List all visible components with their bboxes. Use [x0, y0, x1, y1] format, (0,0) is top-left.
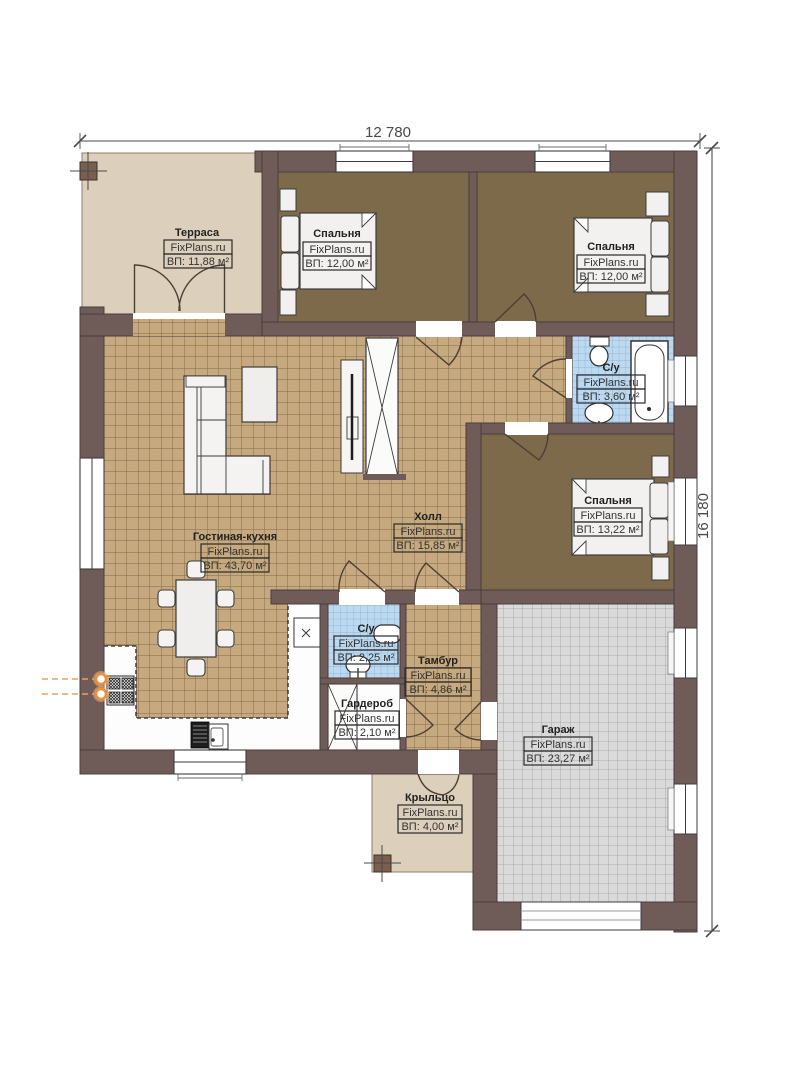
svg-text:ВП: 15,85 м²: ВП: 15,85 м²: [396, 540, 460, 552]
svg-text:FixPlans.ru: FixPlans.ru: [583, 377, 638, 389]
svg-text:ВП: 11,88 м²: ВП: 11,88 м²: [167, 256, 230, 268]
svg-text:Крыльцо: Крыльцо: [405, 792, 455, 804]
svg-text:FixPlans.ru: FixPlans.ru: [339, 713, 394, 725]
svg-text:ВП: 12,00 м²: ВП: 12,00 м²: [579, 271, 643, 283]
svg-text:Терраса: Терраса: [175, 227, 220, 239]
svg-text:FixPlans.ru: FixPlans.ru: [207, 546, 262, 558]
svg-text:FixPlans.ru: FixPlans.ru: [580, 510, 635, 522]
svg-text:FixPlans.ru: FixPlans.ru: [309, 244, 364, 256]
svg-text:Холл: Холл: [414, 511, 442, 523]
svg-text:FixPlans.ru: FixPlans.ru: [400, 526, 455, 538]
svg-text:ВП: 12,00 м²: ВП: 12,00 м²: [305, 258, 369, 270]
svg-text:Гараж: Гараж: [542, 724, 575, 736]
svg-text:Спальня: Спальня: [313, 228, 361, 240]
svg-text:Спальня: Спальня: [584, 495, 632, 507]
svg-text:FixPlans.ru: FixPlans.ru: [530, 739, 585, 751]
svg-text:ВП: 4,00 м²: ВП: 4,00 м²: [401, 821, 458, 833]
svg-text:ВП: 13,22 м²: ВП: 13,22 м²: [576, 524, 640, 536]
svg-text:ВП: 23,27 м²: ВП: 23,27 м²: [526, 753, 590, 765]
svg-text:Гостиная-кухня: Гостиная-кухня: [193, 531, 277, 543]
svg-text:12 780: 12 780: [365, 124, 411, 141]
svg-text:ВП: 3,60 м²: ВП: 3,60 м²: [582, 391, 639, 403]
svg-text:FixPlans.ru: FixPlans.ru: [338, 638, 393, 650]
svg-text:16 180: 16 180: [695, 493, 712, 539]
svg-text:ВП: 2,25 м²: ВП: 2,25 м²: [337, 652, 394, 664]
svg-text:ВП: 2,10 м²: ВП: 2,10 м²: [338, 727, 395, 739]
svg-text:FixPlans.ru: FixPlans.ru: [170, 242, 225, 254]
svg-text:С/у: С/у: [357, 623, 375, 635]
svg-text:ВП: 43,70 м²: ВП: 43,70 м²: [203, 560, 267, 572]
svg-text:FixPlans.ru: FixPlans.ru: [583, 257, 638, 269]
svg-text:ВП: 4,86 м²: ВП: 4,86 м²: [409, 684, 466, 696]
svg-text:FixPlans.ru: FixPlans.ru: [402, 807, 457, 819]
svg-text:FixPlans.ru: FixPlans.ru: [410, 670, 465, 682]
svg-text:Спальня: Спальня: [587, 241, 635, 253]
svg-text:С/у: С/у: [602, 362, 620, 374]
svg-text:Тамбур: Тамбур: [418, 655, 458, 667]
svg-text:Гардероб: Гардероб: [341, 698, 393, 710]
